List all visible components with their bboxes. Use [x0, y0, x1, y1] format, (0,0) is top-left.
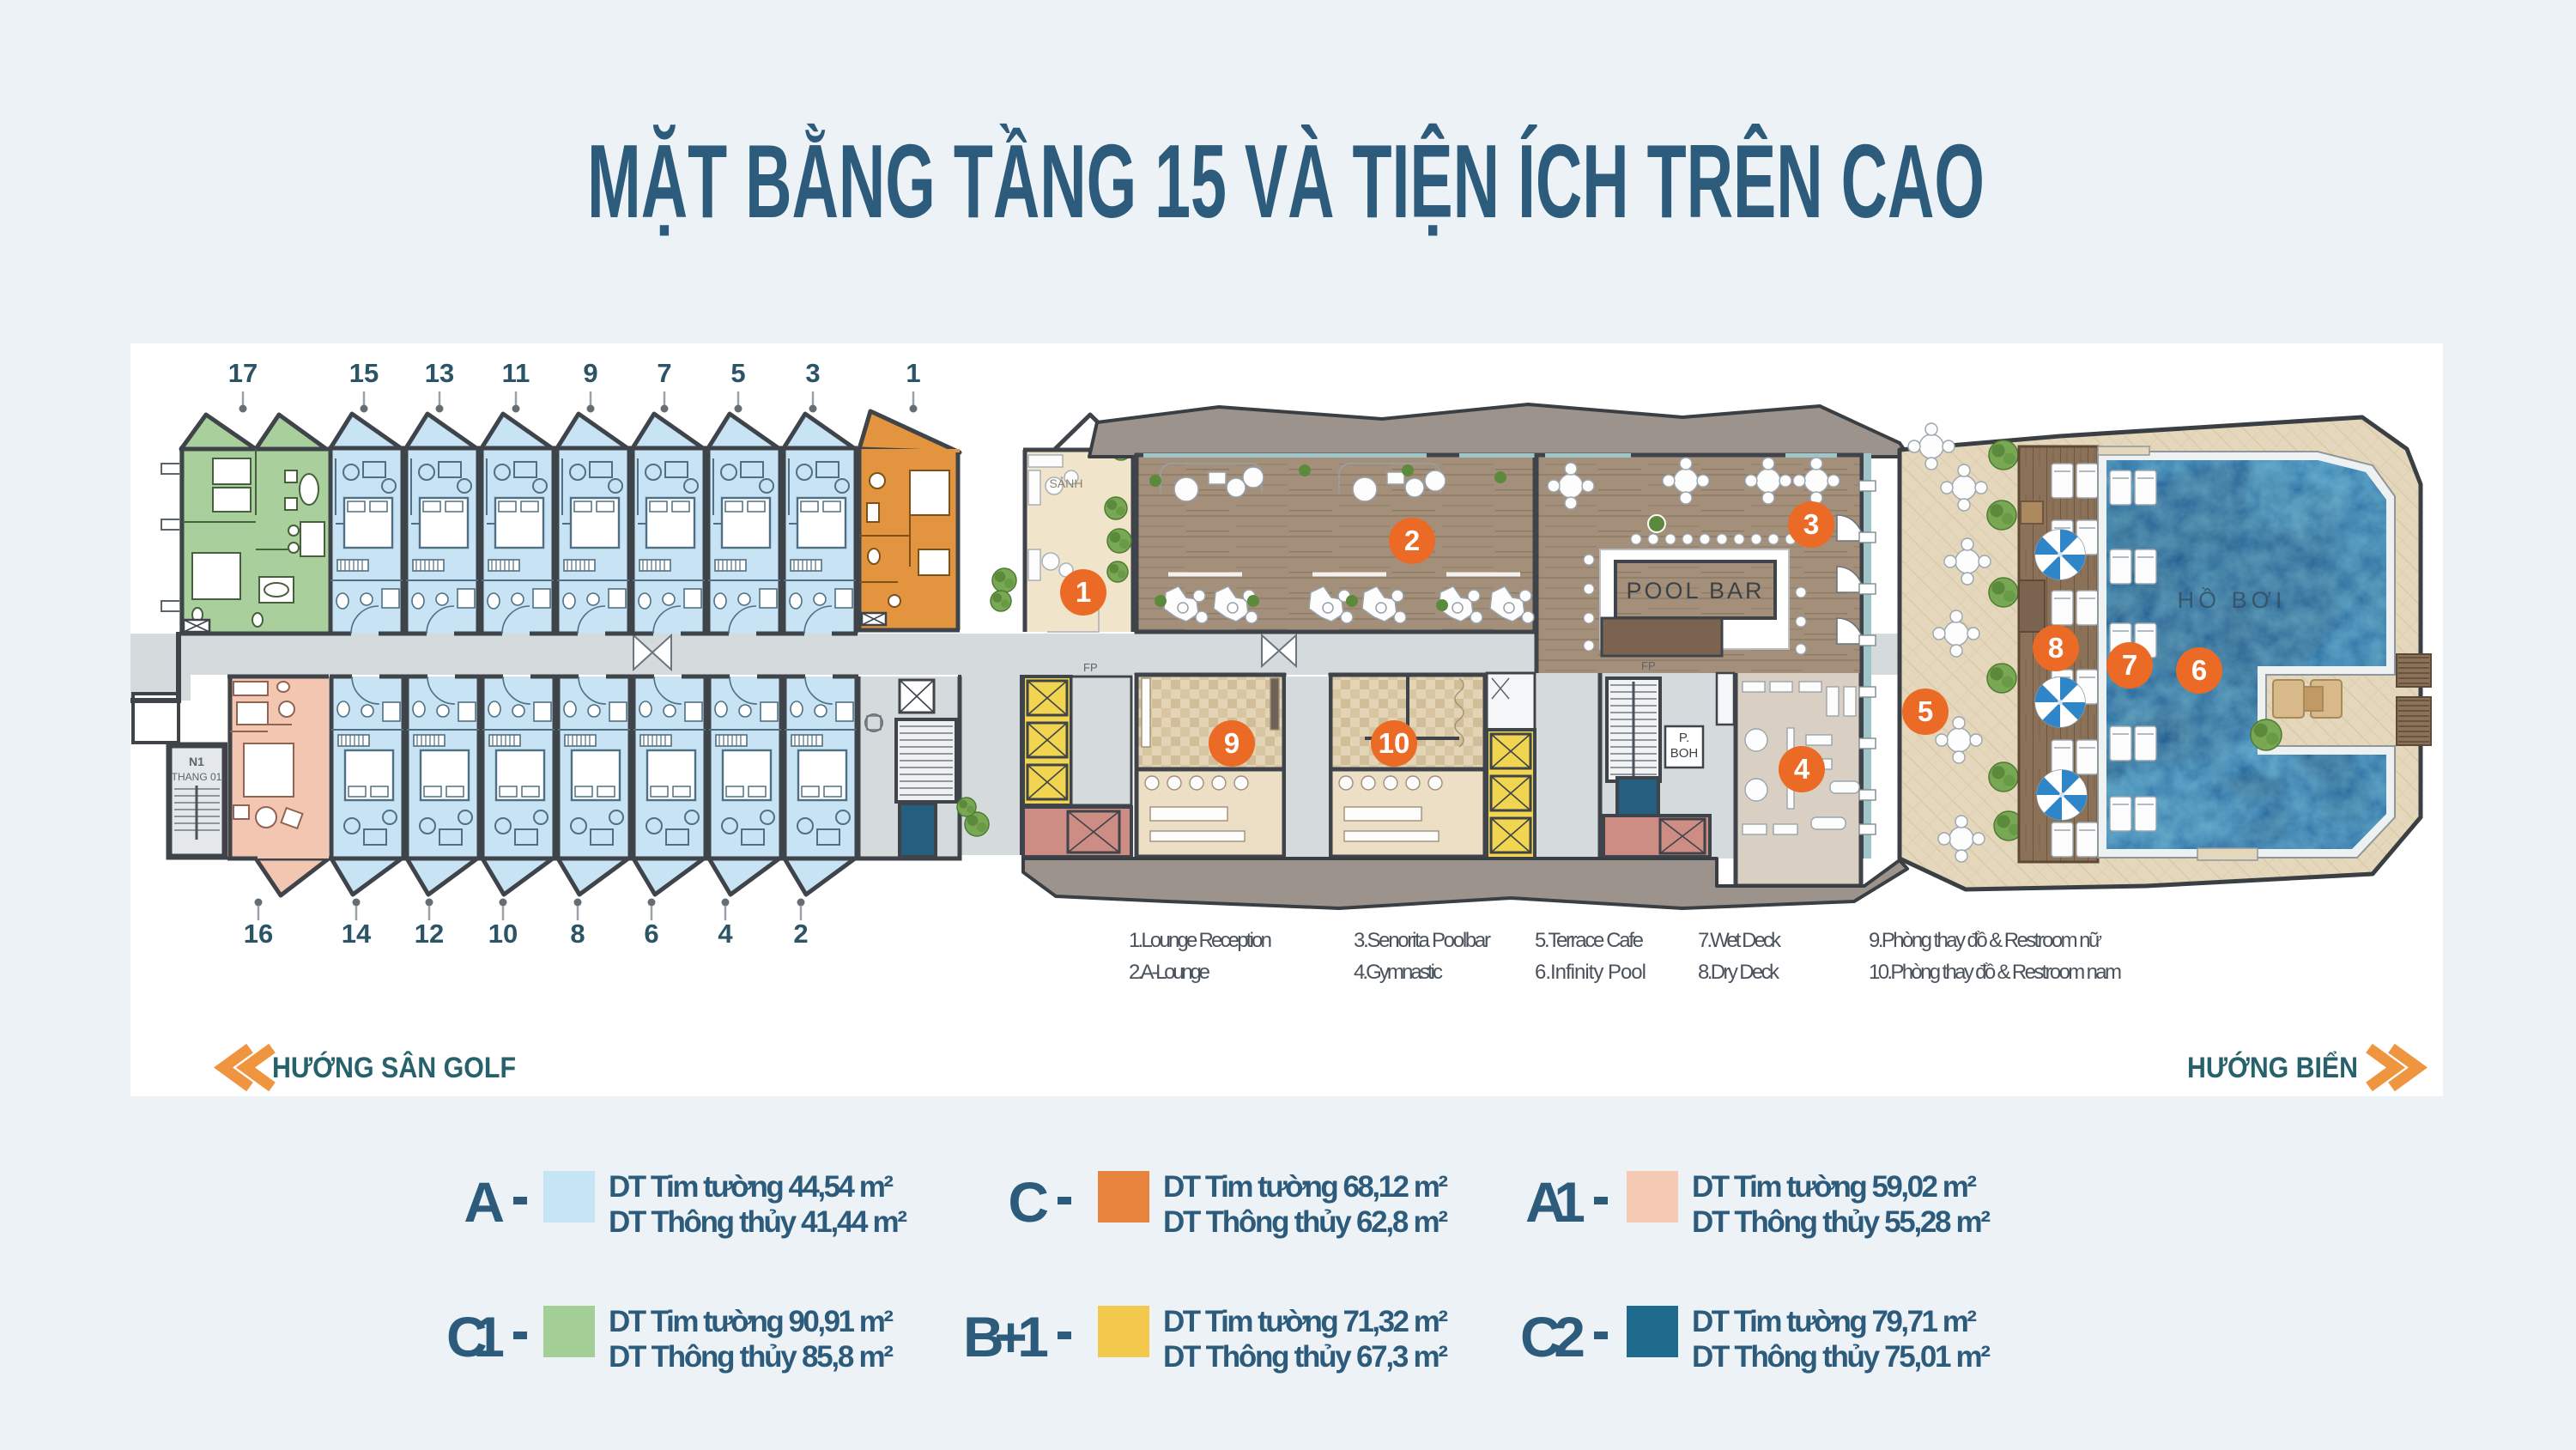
- svg-text:MẶT BẰNG TẦNG 15 VÀ TIỆN ÍCH T: MẶT BẰNG TẦNG 15 VÀ TIỆN ÍCH TRÊN CAO: [587, 123, 1985, 240]
- svg-text:12: 12: [415, 919, 444, 949]
- svg-text:HƯỚNG BIỂN: HƯỚNG BIỂN: [2187, 1052, 2358, 1084]
- svg-text:9.Phòng thay đồ & Restroom nữ: 9.Phòng thay đồ & Restroom nữ: [1869, 929, 2102, 952]
- svg-text:C1: C1: [446, 1305, 505, 1368]
- svg-text:DT Thông thủy 62,8 m²: DT Thông thủy 62,8 m²: [1163, 1205, 1448, 1239]
- svg-text:11: 11: [502, 358, 530, 388]
- svg-text:17: 17: [228, 358, 258, 388]
- svg-text:C: C: [1008, 1170, 1049, 1234]
- svg-text:FP: FP: [1083, 661, 1098, 674]
- svg-text:DT Tim tường 68,12 m²: DT Tim tường 68,12 m²: [1163, 1170, 1448, 1204]
- svg-text:P.: P.: [1679, 731, 1689, 745]
- svg-text:BOH: BOH: [1670, 746, 1699, 761]
- svg-text:2.A-Lounge: 2.A-Lounge: [1129, 961, 1210, 984]
- svg-text:2: 2: [793, 919, 808, 949]
- svg-text:DT Thông thủy 75,01 m²: DT Thông thủy 75,01 m²: [1692, 1340, 1991, 1374]
- svg-text:15: 15: [349, 358, 379, 388]
- svg-text:4: 4: [718, 919, 733, 949]
- svg-text:9: 9: [1224, 727, 1240, 759]
- svg-text:4.Gymnastic: 4.Gymnastic: [1354, 961, 1443, 984]
- svg-text:5: 5: [730, 358, 745, 388]
- svg-text:8: 8: [570, 919, 585, 949]
- svg-text:5: 5: [1918, 695, 1933, 727]
- svg-text:A1: A1: [1525, 1170, 1585, 1234]
- svg-text:6.Infinity Pool: 6.Infinity Pool: [1535, 961, 1646, 984]
- svg-text:N1: N1: [189, 755, 204, 768]
- svg-text:5.Terrace Cafe: 5.Terrace Cafe: [1535, 929, 1644, 952]
- svg-text:6: 6: [644, 919, 658, 949]
- svg-text:10: 10: [488, 919, 518, 949]
- svg-text:HƯỚNG SÂN GOLF: HƯỚNG SÂN GOLF: [272, 1052, 516, 1084]
- svg-text:C2: C2: [1520, 1305, 1585, 1368]
- svg-text:8: 8: [2048, 632, 2064, 664]
- svg-text:DT Thông thủy 55,28 m²: DT Thông thủy 55,28 m²: [1692, 1205, 1991, 1239]
- svg-text:3: 3: [1803, 508, 1819, 540]
- svg-text:HỒ BƠI: HỒ BƠI: [2178, 586, 2287, 613]
- svg-text:10.Phòng thay đồ & Restroom na: 10.Phòng thay đồ & Restroom nam: [1869, 961, 2122, 984]
- svg-text:3: 3: [805, 358, 820, 388]
- svg-text:FP: FP: [1641, 659, 1656, 672]
- svg-text:7.Wet Deck: 7.Wet Deck: [1698, 929, 1782, 952]
- svg-text:DT Tim tường 90,91 m²: DT Tim tường 90,91 m²: [609, 1305, 894, 1338]
- svg-text:THANG 01: THANG 01: [172, 771, 222, 783]
- svg-text:8.Dry Deck: 8.Dry Deck: [1698, 961, 1780, 984]
- svg-text:7: 7: [2122, 649, 2137, 681]
- svg-text:POOL BAR: POOL BAR: [1626, 578, 1764, 604]
- svg-text:4: 4: [1794, 753, 1810, 785]
- svg-text:DT Tim tường 71,32 m²: DT Tim tường 71,32 m²: [1163, 1305, 1448, 1338]
- svg-text:16: 16: [244, 919, 273, 949]
- svg-text:1.Lounge Reception: 1.Lounge Reception: [1129, 929, 1272, 952]
- svg-text:3.Senorita Poolbar: 3.Senorita Poolbar: [1354, 929, 1491, 952]
- svg-text:6: 6: [2191, 654, 2207, 686]
- svg-text:DT Thông thủy 41,44 m²: DT Thông thủy 41,44 m²: [609, 1205, 907, 1239]
- svg-text:DT Thông thủy 67,3 m²: DT Thông thủy 67,3 m²: [1163, 1340, 1448, 1374]
- svg-text:1: 1: [1076, 576, 1091, 608]
- svg-text:DT Tim tường 44,54 m²: DT Tim tường 44,54 m²: [609, 1170, 894, 1204]
- svg-text:DT Tim tường 59,02 m²: DT Tim tường 59,02 m²: [1692, 1170, 1977, 1204]
- svg-text:14: 14: [342, 919, 372, 949]
- svg-text:B+1: B+1: [963, 1305, 1049, 1368]
- svg-text:13: 13: [425, 358, 454, 388]
- svg-text:7: 7: [657, 358, 671, 388]
- svg-text:A: A: [464, 1170, 505, 1234]
- svg-text:SẢNH: SẢNH: [1050, 476, 1083, 490]
- svg-text:DT Thông thủy 85,8 m²: DT Thông thủy 85,8 m²: [609, 1340, 894, 1374]
- svg-text:10: 10: [1379, 727, 1410, 759]
- svg-text:2: 2: [1404, 525, 1420, 556]
- svg-text:9: 9: [583, 358, 597, 388]
- svg-text:DT Tim tường 79,71 m²: DT Tim tường 79,71 m²: [1692, 1305, 1977, 1338]
- svg-text:1: 1: [906, 358, 920, 388]
